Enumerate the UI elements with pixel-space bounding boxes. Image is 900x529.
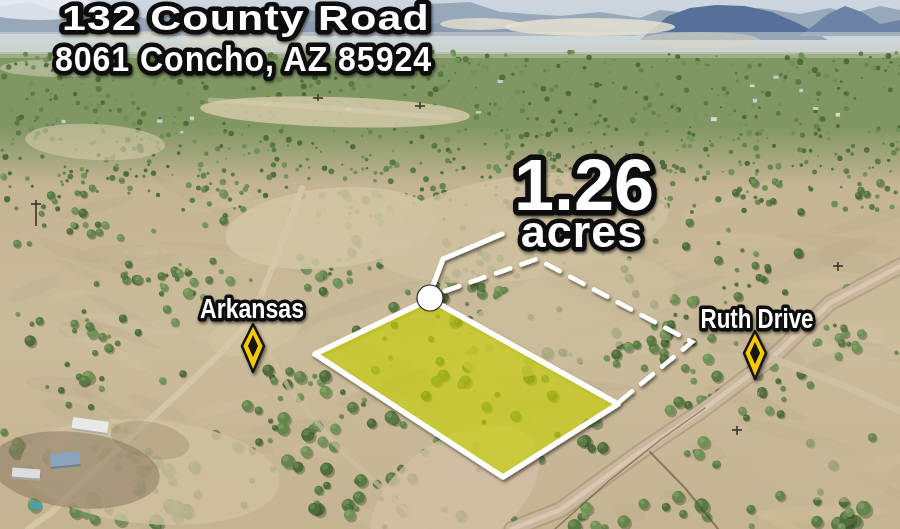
parcel-corner-node <box>417 285 443 311</box>
parcel-highlight <box>315 299 618 477</box>
acreage-unit: acres <box>521 206 644 257</box>
arkansas-pin-icon <box>242 324 264 372</box>
address-line-2: 8061 Concho, AZ 85924 <box>55 39 432 78</box>
annotation-overlay: 132 County Road 8061 Concho, AZ 85924 1.… <box>0 0 900 529</box>
ruth-drive-pin-icon <box>744 331 766 379</box>
street-label-arkansas: Arkansas <box>200 294 304 324</box>
street-label-ruth-drive: Ruth Drive <box>701 304 814 334</box>
acreage-leader-line <box>431 234 502 291</box>
address-line-1: 132 County Road <box>62 0 430 37</box>
listing-photo: 132 County Road 8061 Concho, AZ 85924 1.… <box>0 0 900 529</box>
